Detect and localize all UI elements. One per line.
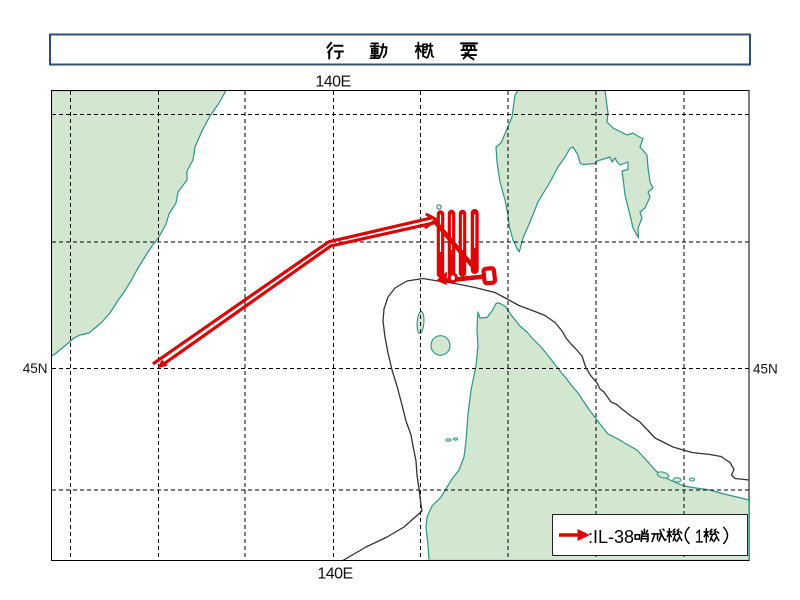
svg-text:45N: 45N xyxy=(23,361,48,376)
svg-text:140E: 140E xyxy=(317,566,352,583)
svg-text:140E: 140E xyxy=(315,74,350,91)
svg-text::IL-38: :IL-38 xyxy=(588,527,634,547)
svg-text:45N: 45N xyxy=(753,362,778,377)
